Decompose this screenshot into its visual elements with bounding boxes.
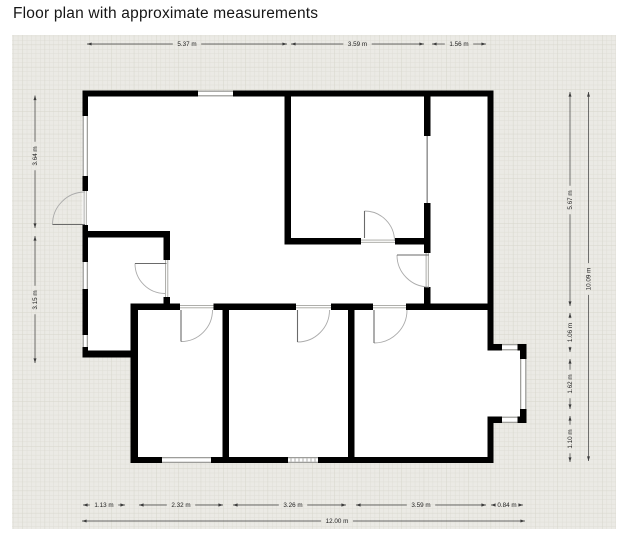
svg-text:3.26 m: 3.26 m: [283, 502, 302, 509]
svg-text:3.15 m: 3.15 m: [32, 290, 39, 309]
svg-text:2.32 m: 2.32 m: [171, 502, 190, 509]
svg-text:1.13 m: 1.13 m: [94, 502, 113, 509]
svg-text:0.84 m: 0.84 m: [497, 502, 516, 509]
svg-text:3.59 m: 3.59 m: [411, 502, 430, 509]
svg-text:1.62 m: 1.62 m: [567, 374, 574, 393]
svg-text:1.10 m: 1.10 m: [567, 429, 574, 448]
svg-text:1.56 m: 1.56 m: [449, 41, 468, 48]
svg-text:5.67 m: 5.67 m: [567, 190, 574, 209]
svg-text:12.00 m: 12.00 m: [326, 518, 349, 525]
svg-text:5.37 m: 5.37 m: [177, 41, 196, 48]
svg-text:3.64 m: 3.64 m: [32, 146, 39, 165]
svg-text:10.09 m: 10.09 m: [586, 268, 593, 291]
svg-text:1.06 m: 1.06 m: [567, 323, 574, 342]
svg-text:3.59 m: 3.59 m: [348, 41, 367, 48]
